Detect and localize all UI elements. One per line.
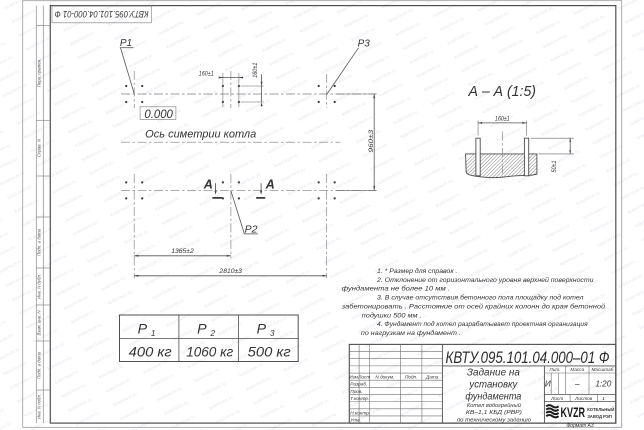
svg-text:Инв. N подл.: Инв. N подл. — [37, 394, 42, 419]
svg-text:КОТЕЛЬНЫЙ: КОТЕЛЬНЫЙ — [587, 407, 614, 412]
svg-text:Масштаб: Масштаб — [591, 367, 613, 372]
svg-text:1365±2: 1365±2 — [171, 248, 194, 255]
svg-text:КВТУ.095.101.04.000–01 Ф: КВТУ.095.101.04.000–01 Ф — [446, 349, 610, 367]
svg-text:Дата: Дата — [425, 374, 439, 379]
svg-text:KVZR: KVZR — [561, 405, 586, 420]
svg-text:4. Фундамент под котел раз: 4. Фундамент под котел разрабатывает про… — [377, 320, 588, 328]
svg-text:1. * Размер для справок .: 1. * Размер для справок . — [377, 267, 458, 275]
svg-text:Утв.: Утв. — [350, 417, 361, 422]
svg-text:Н.контр.: Н.контр. — [350, 410, 370, 415]
svg-text:500 кг: 500 кг — [248, 344, 291, 359]
svg-text:1060 кг: 1060 кг — [186, 344, 233, 359]
svg-text:2. Отклонение от горизонтал: 2. Отклонение от горизонтального уровня … — [376, 276, 594, 284]
svg-text:Разраб.: Разраб. — [350, 382, 367, 387]
svg-text:160±1: 160±1 — [252, 63, 259, 78]
svg-text:фундамента не более 10 мм: фундамента не более 10 мм . — [342, 285, 450, 293]
svg-text:КВ–1,1 КБД (РВР): КВ–1,1 КБД (РВР) — [466, 410, 522, 416]
svg-text:КВТУ.095.101.04.000-01 Ф: КВТУ.095.101.04.000-01 Ф — [54, 8, 148, 19]
svg-text:Инв. N дубл.: Инв. N дубл. — [37, 274, 42, 299]
svg-text:Задание на: Задание на — [467, 368, 520, 379]
svg-text:по техническому заданию: по техническому заданию — [457, 417, 531, 423]
svg-text:фундамента: фундамента — [465, 391, 521, 403]
svg-text:Подп. и дата: Подп. и дата — [37, 228, 42, 256]
svg-text:Перв. примен.: Перв. примен. — [37, 59, 42, 88]
svg-text:по нагрузкам на фундамент .: по нагрузкам на фундамент . — [361, 329, 461, 337]
svg-text:0.000: 0.000 — [144, 107, 173, 121]
svg-text:N докум.: N докум. — [375, 374, 394, 379]
svg-text:подушки 500 мм .: подушки 500 мм . — [362, 311, 422, 319]
svg-text:забетонировать . Расстояние: забетонировать . Расстояние от осей край… — [341, 302, 606, 310]
svg-text:Лит.: Лит. — [549, 367, 561, 372]
svg-text:А: А — [265, 178, 275, 192]
svg-text:А: А — [203, 178, 213, 192]
svg-text:960±3: 960±3 — [368, 129, 375, 152]
svg-text:Р3: Р3 — [358, 38, 371, 49]
svg-text:Листов: Листов — [574, 396, 593, 401]
svg-text:400 кг: 400 кг — [129, 344, 172, 359]
svg-text:ЗАВОД РЭП: ЗАВОД РЭП — [587, 414, 612, 419]
svg-text:Справ. N: Справ. N — [37, 138, 42, 157]
svg-text:А – А (1:5): А – А (1:5) — [468, 84, 536, 100]
svg-text:Котел водогрейный: Котел водогрейный — [467, 402, 521, 409]
svg-text:1: 1 — [602, 396, 605, 401]
svg-text:Подп. и дата: Подп. и дата — [37, 351, 42, 379]
svg-text:Ось симетрии котла: Ось симетрии котла — [145, 129, 256, 141]
svg-text:–: – — [574, 380, 580, 389]
svg-text:Формат А3: Формат А3 — [566, 423, 594, 429]
svg-text:Взам. инв. N: Взам. инв. N — [37, 310, 42, 336]
svg-text:3. В случае отсутствия бет: 3. В случае отсутствия бетонного пола пл… — [377, 294, 584, 302]
svg-text:160±1: 160±1 — [199, 71, 214, 78]
svg-text:Т.контр.: Т.контр. — [350, 396, 369, 401]
svg-text:50±1: 50±1 — [551, 161, 558, 173]
svg-text:2810±3: 2810±3 — [218, 268, 242, 275]
svg-text:Подп.: Подп. — [405, 374, 417, 379]
svg-text:Масса: Масса — [570, 367, 584, 372]
svg-text:Пров.: Пров. — [350, 389, 362, 394]
svg-text:Лист: Лист — [357, 374, 370, 379]
svg-text:Лист: Лист — [550, 396, 563, 401]
svg-text:И: И — [545, 380, 551, 389]
svg-text:1:20: 1:20 — [595, 380, 611, 389]
svg-text:установку: установку — [468, 380, 518, 391]
svg-text:160±1: 160±1 — [495, 115, 510, 122]
